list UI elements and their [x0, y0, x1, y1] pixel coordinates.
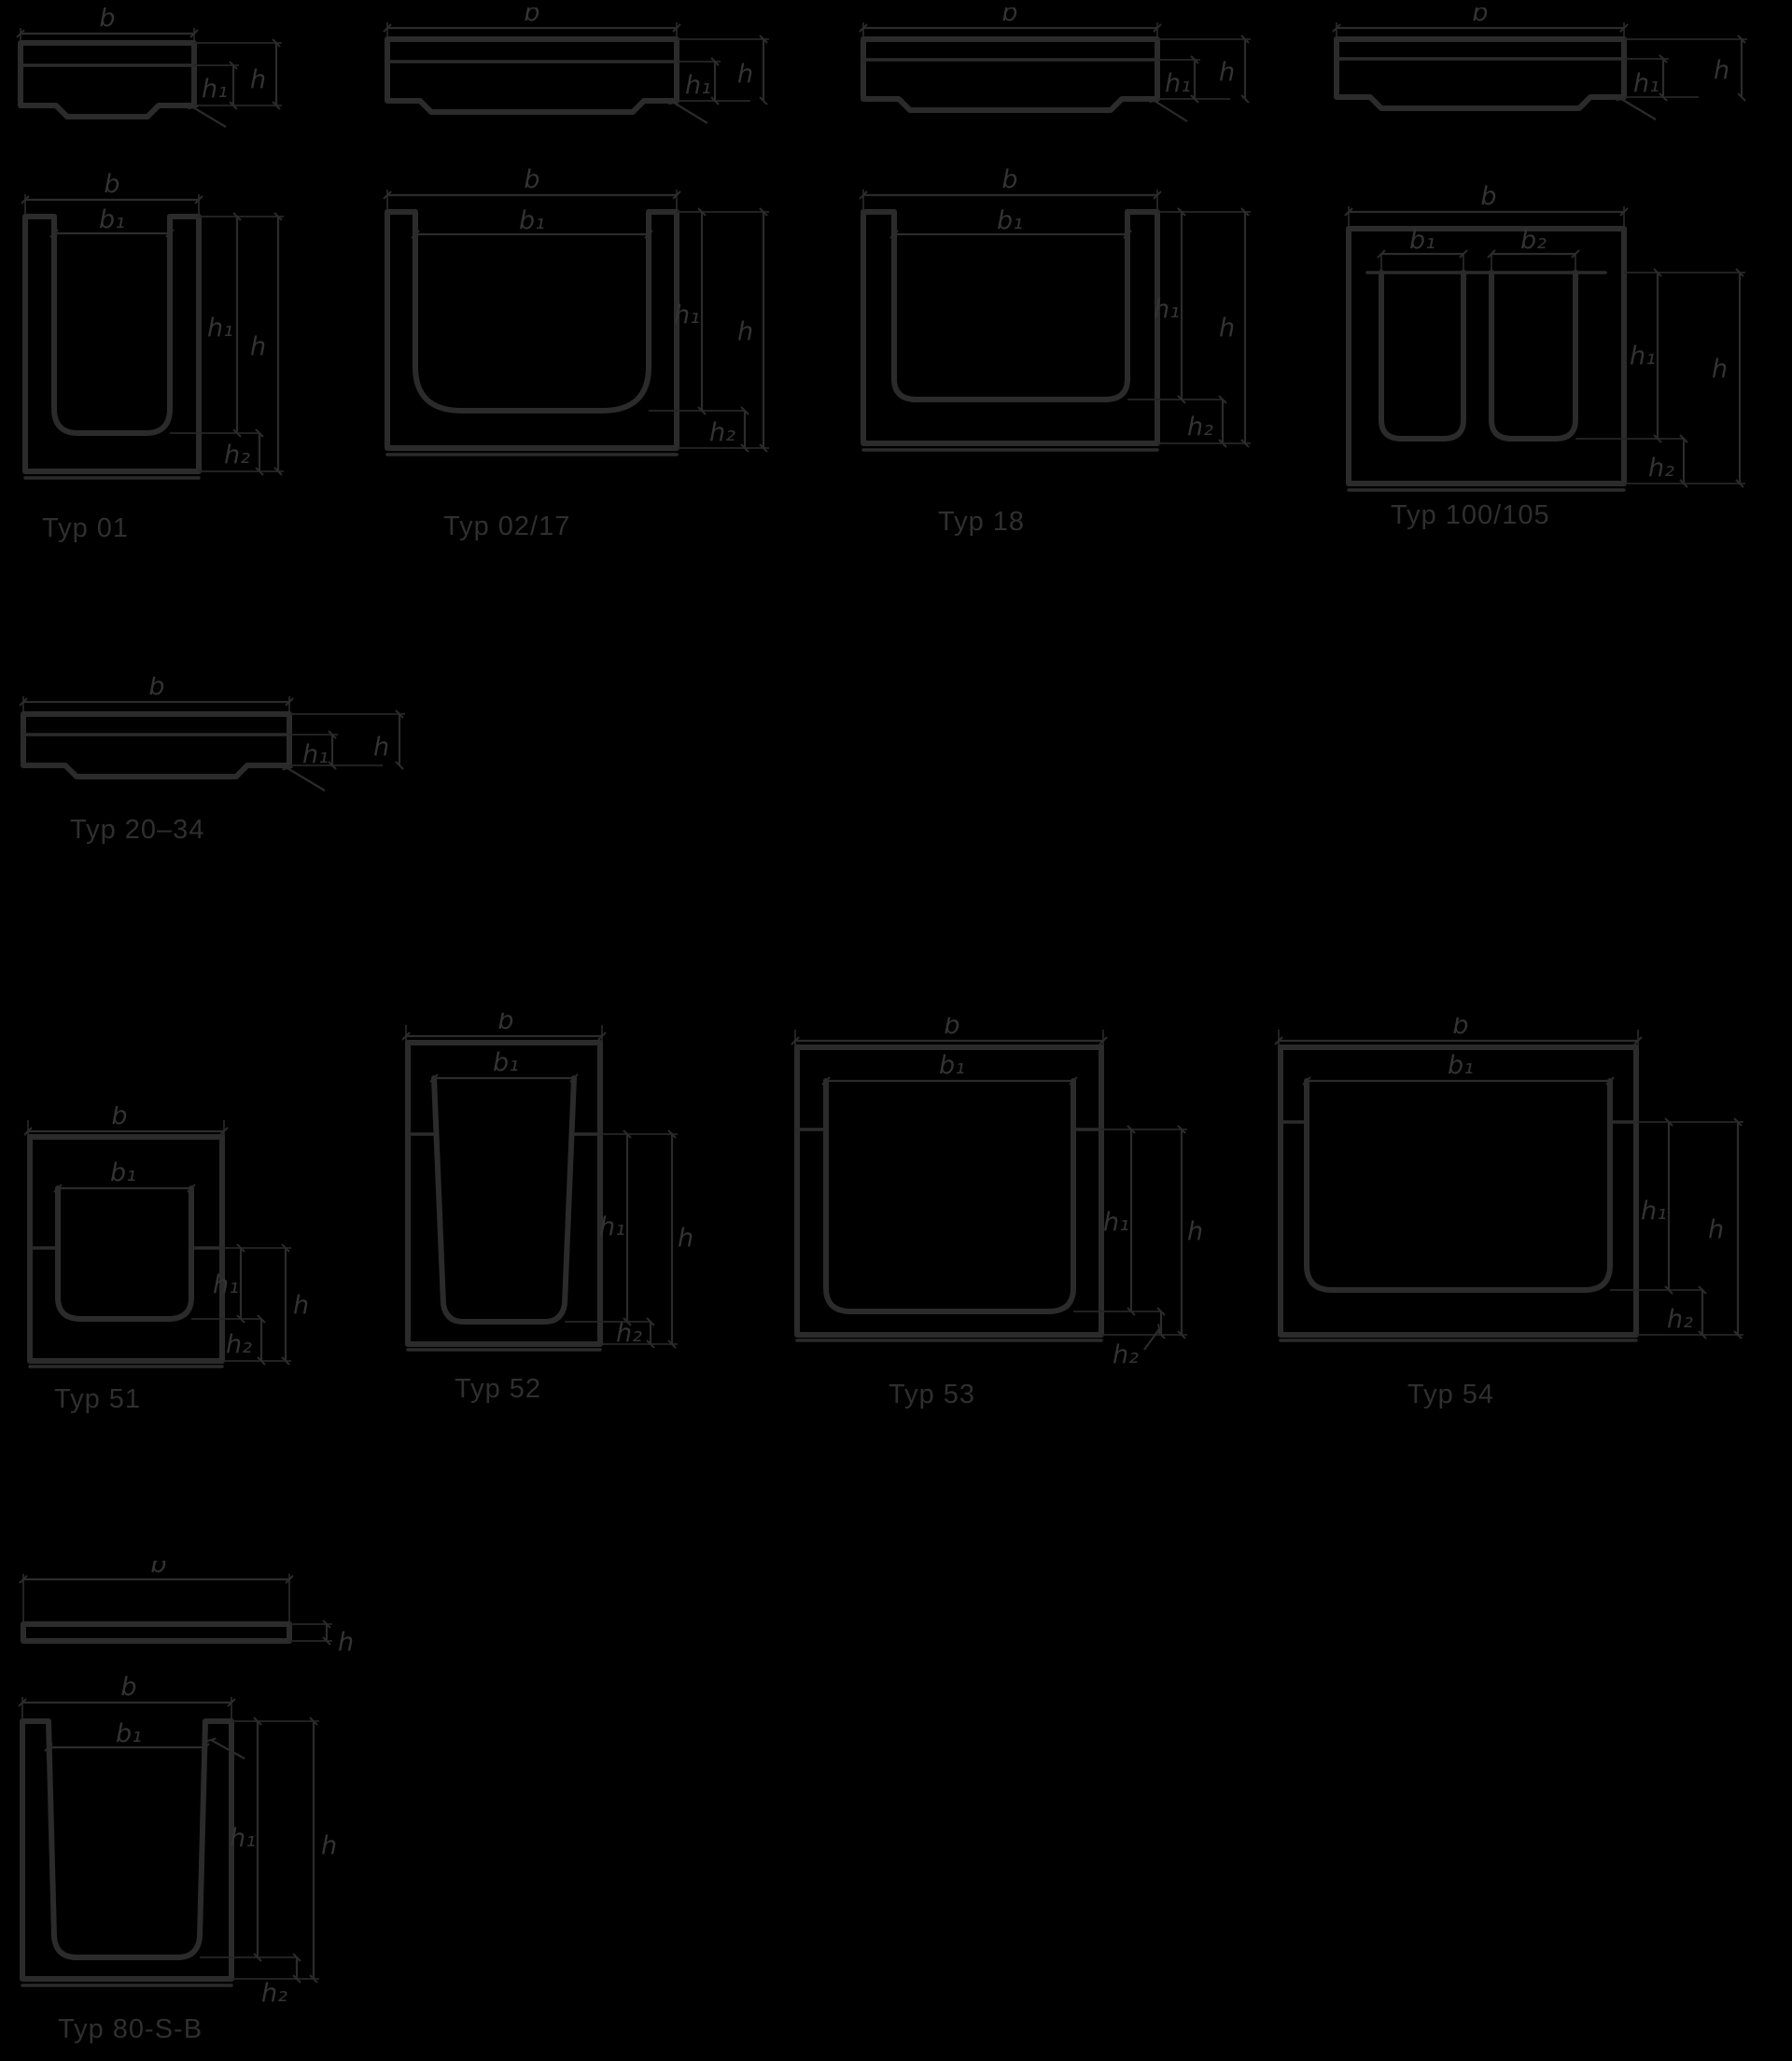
dim-label-h1: h₁ — [230, 1824, 256, 1853]
dim-label-h1: h₁ — [1633, 69, 1659, 98]
diagram-caption: Typ 80-S-B — [58, 2014, 203, 2045]
dim-label-b: b — [99, 7, 115, 33]
dim-label-b1: b₁ — [939, 1051, 965, 1080]
dim-label-h2: h₂ — [1113, 1340, 1139, 1369]
channel-profile-section: b b₁ h₁ h h₂ — [1279, 1017, 1743, 1340]
dim-label-h: h — [338, 1628, 354, 1657]
profile-drawing-typ-53: b b₁ h₁ h h₂ — [784, 1017, 1223, 1372]
dim-label-b: b — [1472, 7, 1488, 27]
dim-label-b1: b₁ — [99, 205, 125, 234]
leader-line — [674, 103, 707, 123]
strip-profile-section: b h — [23, 1561, 354, 1657]
diagram-caption: Typ 51 — [54, 1384, 141, 1415]
channel-profile-section: b b₁ h₁ h h₂ — [406, 1013, 693, 1350]
profile-drawing-typ-20-34: b h₁ h — [9, 677, 411, 812]
diagram-caption: Typ 02/17 — [443, 512, 570, 542]
diagram-typ-18: b h₁ h b b₁ h₁ h h₂ Typ 18 — [849, 7, 1260, 549]
dim-label-h1: h₁ — [202, 75, 228, 104]
dim-label-h1: h₁ — [1165, 69, 1191, 98]
dim-label-h2: h₂ — [226, 1330, 252, 1359]
leader-line — [1621, 99, 1656, 119]
profile-drawing-typ-54: b b₁ h₁ h h₂ — [1269, 1017, 1755, 1372]
dim-label-h1: h₁ — [674, 301, 700, 329]
dim-label-h: h — [250, 332, 266, 361]
dim-label-h1: h₁ — [207, 314, 233, 343]
dim-label-h: h — [1187, 1217, 1203, 1246]
dim-label-h2: h₂ — [1648, 454, 1674, 483]
diagram-caption: Typ 53 — [889, 1380, 975, 1410]
leader-line — [1144, 1329, 1159, 1350]
profile-drawing-typ-100-105: b h₁ h b b₁ b₂ h₁ — [1325, 7, 1755, 512]
cover-profile-section: b h₁ h — [863, 7, 1251, 121]
dim-label-b: b — [150, 1561, 166, 1578]
dim-label-h1: h₁ — [213, 1270, 239, 1299]
diagram-typ-02-17: b h₁ h b b₁ h₁ h h₂ Typ 02 — [373, 7, 775, 549]
cover-profile-section: b h₁ h — [21, 7, 282, 127]
dim-label-h: h — [737, 317, 753, 346]
dim-label-b1: b₁ — [493, 1048, 519, 1077]
dim-label-h2: h₂ — [709, 418, 735, 447]
diagram-caption: Typ 100/105 — [1391, 500, 1550, 531]
dim-label-h1: h₁ — [685, 71, 711, 100]
dim-label-b1: b₁ — [519, 206, 545, 235]
diagram-caption: Typ 18 — [938, 507, 1025, 538]
leader-line — [1155, 101, 1187, 121]
dim-label-h2: h₂ — [1667, 1305, 1693, 1334]
dim-label-h1: h₁ — [599, 1213, 625, 1241]
channel-profile-section: b b₁ h₁ h h₂ — [22, 1673, 337, 2008]
dim-label-b1: b₁ — [110, 1158, 136, 1187]
diagram-caption: Typ 52 — [455, 1374, 541, 1405]
leader-line — [211, 1740, 245, 1759]
dim-label-h: h — [1708, 1215, 1724, 1244]
dim-label-h: h — [1712, 355, 1728, 384]
dim-label-h: h — [321, 1831, 337, 1860]
diagram-typ-01: b h₁ h b b₁ h₁ h h₂ Typ 01 — [9, 7, 289, 549]
channel-profile-section: b b₁ h₁ h h₂ — [25, 170, 284, 478]
diagram-caption: Typ 20–34 — [70, 815, 204, 846]
diagram-typ-52: b b₁ h₁ h h₂ Typ 52 — [392, 1013, 700, 1414]
diagram-typ-100-105: b h₁ h b b₁ b₂ h₁ — [1325, 7, 1755, 554]
dim-label-b: b — [1001, 165, 1017, 194]
dim-label-b: b — [1480, 182, 1496, 211]
profile-drawing-typ-18: b h₁ h b b₁ h₁ h h₂ — [849, 7, 1260, 507]
dim-label-b2: b₂ — [1520, 226, 1547, 255]
dim-label-b1: b₁ — [1448, 1051, 1474, 1080]
dim-label-h2: h₂ — [1187, 413, 1213, 442]
dim-label-b: b — [1452, 1017, 1468, 1040]
dim-label-h: h — [1219, 58, 1235, 87]
dim-label-h1: h₁ — [302, 740, 329, 769]
dim-label-b: b — [944, 1017, 959, 1040]
dim-label-h1: h₁ — [1641, 1197, 1667, 1226]
profile-drawing-typ-01: b h₁ h b b₁ h₁ h h₂ — [9, 7, 289, 507]
channel-profile-section: b b₁ h₁ h h₂ — [28, 1106, 309, 1367]
dim-label-h: h — [678, 1224, 693, 1253]
dim-label-b1: b₁ — [997, 206, 1023, 235]
dim-label-h: h — [293, 1291, 309, 1320]
channel-profile-section: b b₁ h₁ h h₂ — [795, 1017, 1203, 1369]
dim-label-h: h — [737, 60, 753, 89]
profile-drawing-typ-51: b b₁ h₁ h h₂ — [9, 1106, 345, 1386]
cover-profile-section: b h₁ h — [387, 7, 769, 123]
dim-label-h1: h₁ — [1103, 1208, 1129, 1237]
dim-label-b: b — [497, 1013, 513, 1035]
profile-drawing-typ-52: b b₁ h₁ h h₂ — [392, 1013, 700, 1367]
leader-line — [193, 107, 226, 127]
channel-profile-section: b b₁ h₁ h h₂ — [387, 165, 769, 455]
dim-label-h1: h₁ — [1630, 342, 1656, 371]
dim-label-h: h — [373, 733, 389, 762]
dim-label-b: b — [111, 1106, 127, 1130]
dim-label-b1: b₁ — [116, 1719, 142, 1748]
dim-label-h: h — [250, 65, 266, 94]
channel-profile-section: b b₁ h₁ h h₂ — [863, 165, 1251, 450]
dim-label-b: b — [120, 1673, 136, 1702]
double-channel-profile-section: b b₁ b₂ h₁ h h₂ — [1349, 182, 1745, 490]
dim-label-h: h — [1714, 56, 1729, 85]
dim-label-h: h — [1219, 314, 1235, 343]
diagram-typ-80-s-b: b h b b₁ h₁ h h₂ Typ 80-S-B — [9, 1561, 401, 2057]
cover-profile-section: b h₁ h — [23, 677, 405, 791]
dim-label-b: b — [1001, 7, 1017, 27]
profile-drawing-typ-02-17: b h₁ h b b₁ h₁ h h₂ — [373, 7, 775, 507]
diagram-typ-54: b b₁ h₁ h h₂ Typ 54 — [1269, 1017, 1755, 1419]
dim-label-h2: h₂ — [224, 441, 250, 470]
leader-line — [287, 768, 325, 791]
dim-label-h2: h₂ — [261, 1979, 287, 2008]
dim-label-h2: h₂ — [616, 1319, 642, 1348]
dim-label-b: b — [524, 7, 539, 27]
diagram-caption: Typ 01 — [42, 513, 129, 544]
profile-drawing-typ-80-s-b: b h b b₁ h₁ h h₂ — [9, 1561, 401, 2009]
dim-label-b1: b₁ — [1409, 226, 1435, 255]
technical-drawing-sheet: { "page": { "background": "#000000", "li… — [0, 0, 1792, 2061]
diagram-typ-51: b b₁ h₁ h h₂ Typ 51 — [9, 1106, 345, 1428]
dim-label-h1: h₁ — [1154, 295, 1180, 324]
diagram-typ-20-34: b h₁ h Typ 20–34 — [9, 677, 411, 873]
cover-profile-section: b h₁ h — [1337, 7, 1747, 119]
diagram-typ-53: b b₁ h₁ h h₂ Typ 53 — [784, 1017, 1223, 1419]
diagram-caption: Typ 54 — [1407, 1380, 1494, 1410]
dim-label-b: b — [148, 677, 164, 701]
dim-label-b: b — [524, 165, 539, 194]
dim-label-b: b — [104, 170, 119, 199]
